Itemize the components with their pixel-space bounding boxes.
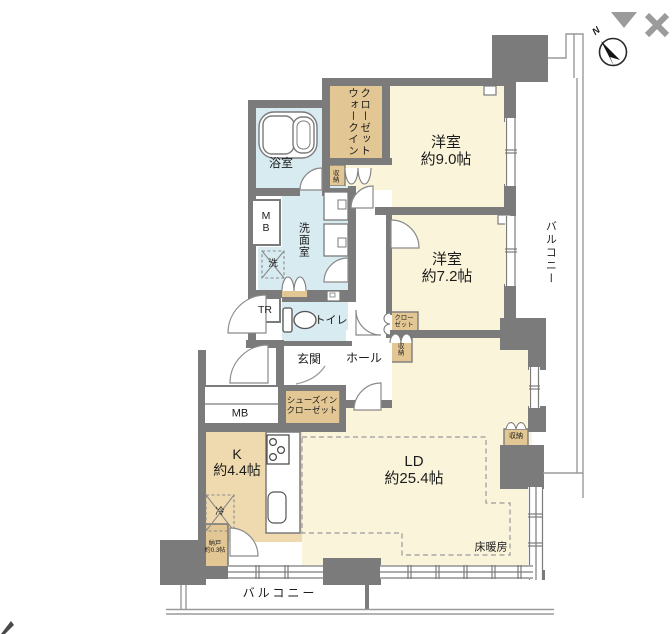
room-label-western7: 洋室 約7.2帖: [422, 251, 473, 286]
room-label-toilet: トイレ: [315, 315, 348, 328]
collapse-icon[interactable]: [611, 12, 637, 28]
storage-label-bedroom7: 収納: [396, 343, 403, 356]
room-label-shoes-in-closet: シューズイン クローゼット: [286, 396, 337, 416]
pen-mark: [1, 621, 14, 634]
ld-name: LD: [404, 453, 423, 470]
wic-line1: ウォークイン: [347, 88, 359, 157]
ld-area: 約25.4帖: [384, 470, 443, 487]
balcony-label-bottom: バルコニー: [243, 587, 318, 601]
storeroom-area: 約0.3帖: [205, 547, 226, 554]
western9-name: 洋室: [431, 134, 461, 151]
kitchen-sink-icon: [268, 492, 286, 523]
washer-label: 洗: [268, 260, 278, 271]
bathtub-icon: [259, 112, 317, 158]
fridge-label: 冷: [215, 508, 225, 519]
room-label-western9: 洋室 約9.0帖: [421, 134, 472, 169]
trunk-room-label: TR: [258, 304, 272, 316]
meter-box-label-lower: MB: [232, 408, 249, 421]
kitchen-name: K: [232, 446, 241, 462]
kitchen-area: 約4.4帖: [213, 462, 260, 478]
floorplan-page: N ウォークイン クローゼット 収納 浴室 洗面室 MB 洗 TR トイレ 玄関…: [0, 0, 672, 634]
room-label-bathroom: 浴室: [269, 157, 293, 171]
room-label-kitchen: K 約4.4帖: [213, 446, 260, 478]
room-label-washroom: 洗面室: [297, 222, 310, 258]
close-icon[interactable]: [647, 15, 667, 35]
storage-label-ld: 収納: [509, 433, 523, 441]
closet-line2: ゼット: [394, 322, 413, 329]
room-label-walk-in-closet: ウォークイン クローゼット: [347, 88, 371, 157]
western7-name: 洋室: [432, 251, 462, 268]
balcony-label-right: バルコニー: [544, 221, 557, 286]
western7-area: 約7.2帖: [422, 268, 473, 285]
room-label-hall: ホール: [346, 352, 382, 366]
room-label-living-dining: LD 約25.4帖: [384, 453, 443, 488]
floor-heating-label: 床暖房: [475, 542, 508, 555]
compass-icon: [600, 39, 627, 69]
room-label-storeroom: 納戸 約0.3帖: [205, 540, 226, 554]
wic-line2: クローゼット: [359, 88, 371, 157]
closet-label: クロー ゼット: [394, 315, 413, 330]
room-label-entrance: 玄関: [297, 353, 321, 367]
meter-box-label-upper: MB: [260, 210, 272, 234]
vanity-sink-icon: [324, 192, 348, 256]
western9-area: 約9.0帖: [421, 151, 472, 168]
sic-line2: クローゼット: [286, 406, 337, 416]
storage-label-bedroom9: 収納: [331, 170, 338, 183]
